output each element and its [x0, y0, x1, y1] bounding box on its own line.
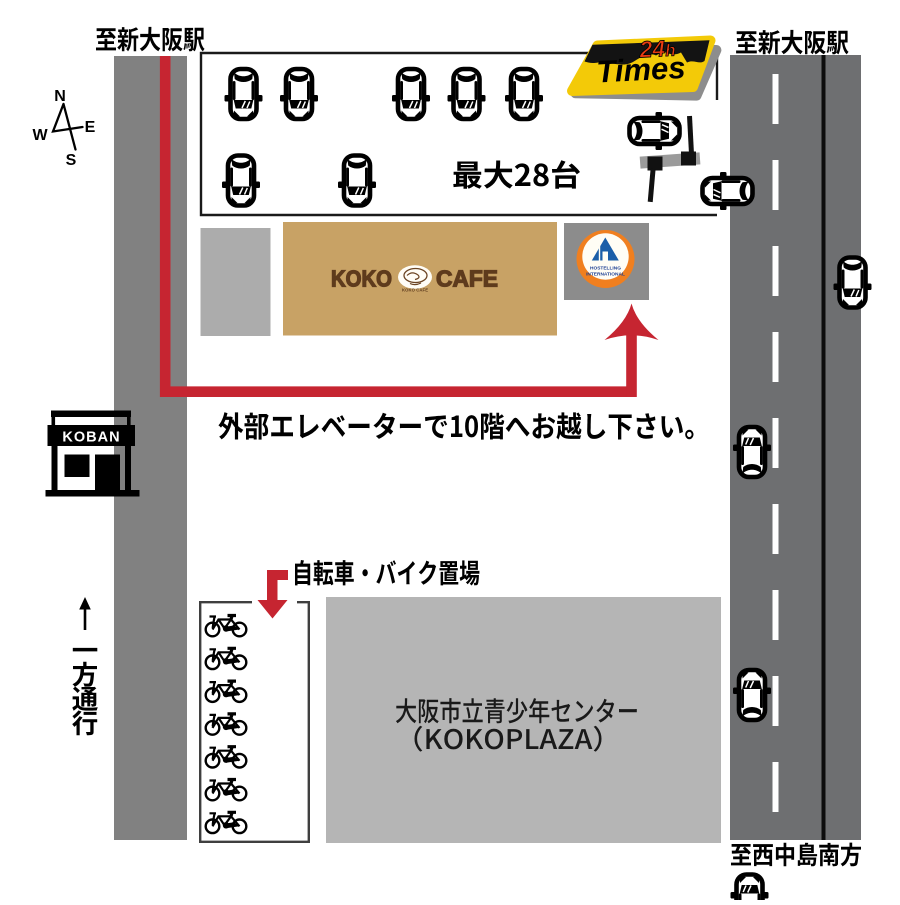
- svg-text:CAFE: CAFE: [436, 266, 498, 292]
- svg-text:E: E: [85, 119, 96, 136]
- svg-text:INTERNATIONAL: INTERNATIONAL: [586, 272, 625, 278]
- svg-text:KOKO: KOKO: [331, 266, 392, 292]
- svg-text:KOKO CAFE: KOKO CAFE: [402, 288, 428, 293]
- svg-text:HOSTELLING: HOSTELLING: [590, 266, 621, 272]
- svg-text:KOBAN: KOBAN: [62, 430, 120, 446]
- svg-text:W: W: [32, 127, 48, 144]
- svg-text:S: S: [66, 152, 77, 169]
- svg-text:N: N: [54, 88, 66, 105]
- svg-text:Times: Times: [596, 50, 687, 90]
